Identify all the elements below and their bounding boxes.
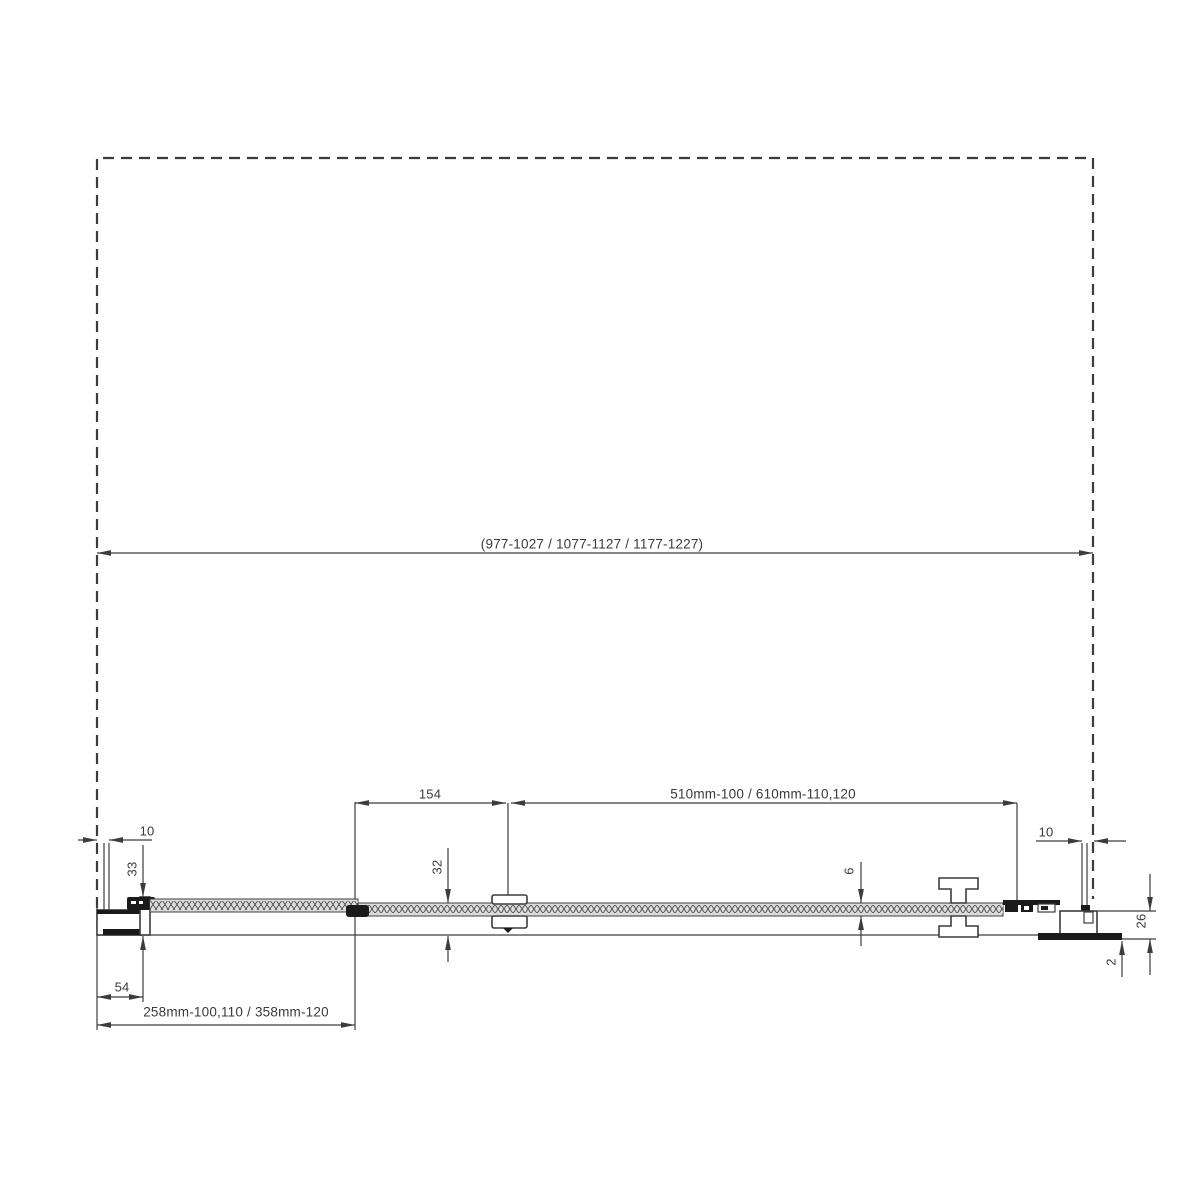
right-wall-profile-upright [1082,843,1087,911]
bottom-profile-height-label: 26 [1134,914,1149,929]
gap-right-label: 10 [1039,825,1054,840]
tray-edge-thickness-label: 2 [1104,958,1119,965]
profile-height-mid-label: 32 [430,860,445,875]
extent-dashed-outline [97,158,1093,908]
gap-left-label: 10 [140,824,155,839]
glass-thickness-label: 6 [842,867,857,874]
left-wall-bracket [97,897,155,935]
drawing-svg [0,0,1200,1200]
profile-height-left-label: 33 [125,862,140,877]
wall-profile-depth-label: 54 [115,980,130,995]
fixed-glass-panel [150,899,358,912]
fixed-panel-width-label: 258mm-100,110 / 358mm-120 [143,1005,329,1020]
panel-joint-offset-label: 154 [419,787,441,802]
door-glass-panel [358,903,1003,916]
left-wall-profile-upright [104,843,109,911]
door-glass-width-label: 510mm-100 / 610mm-110,120 [670,787,856,802]
overall-width-label: (977-1027 / 1077-1127 / 1177-1227) [481,537,703,552]
technical-drawing-canvas: (977-1027 / 1077-1127 / 1177-1227) 10 10… [0,0,1200,1200]
shower-tray-edge [1038,933,1122,940]
panel-overlap-joint [346,905,369,917]
